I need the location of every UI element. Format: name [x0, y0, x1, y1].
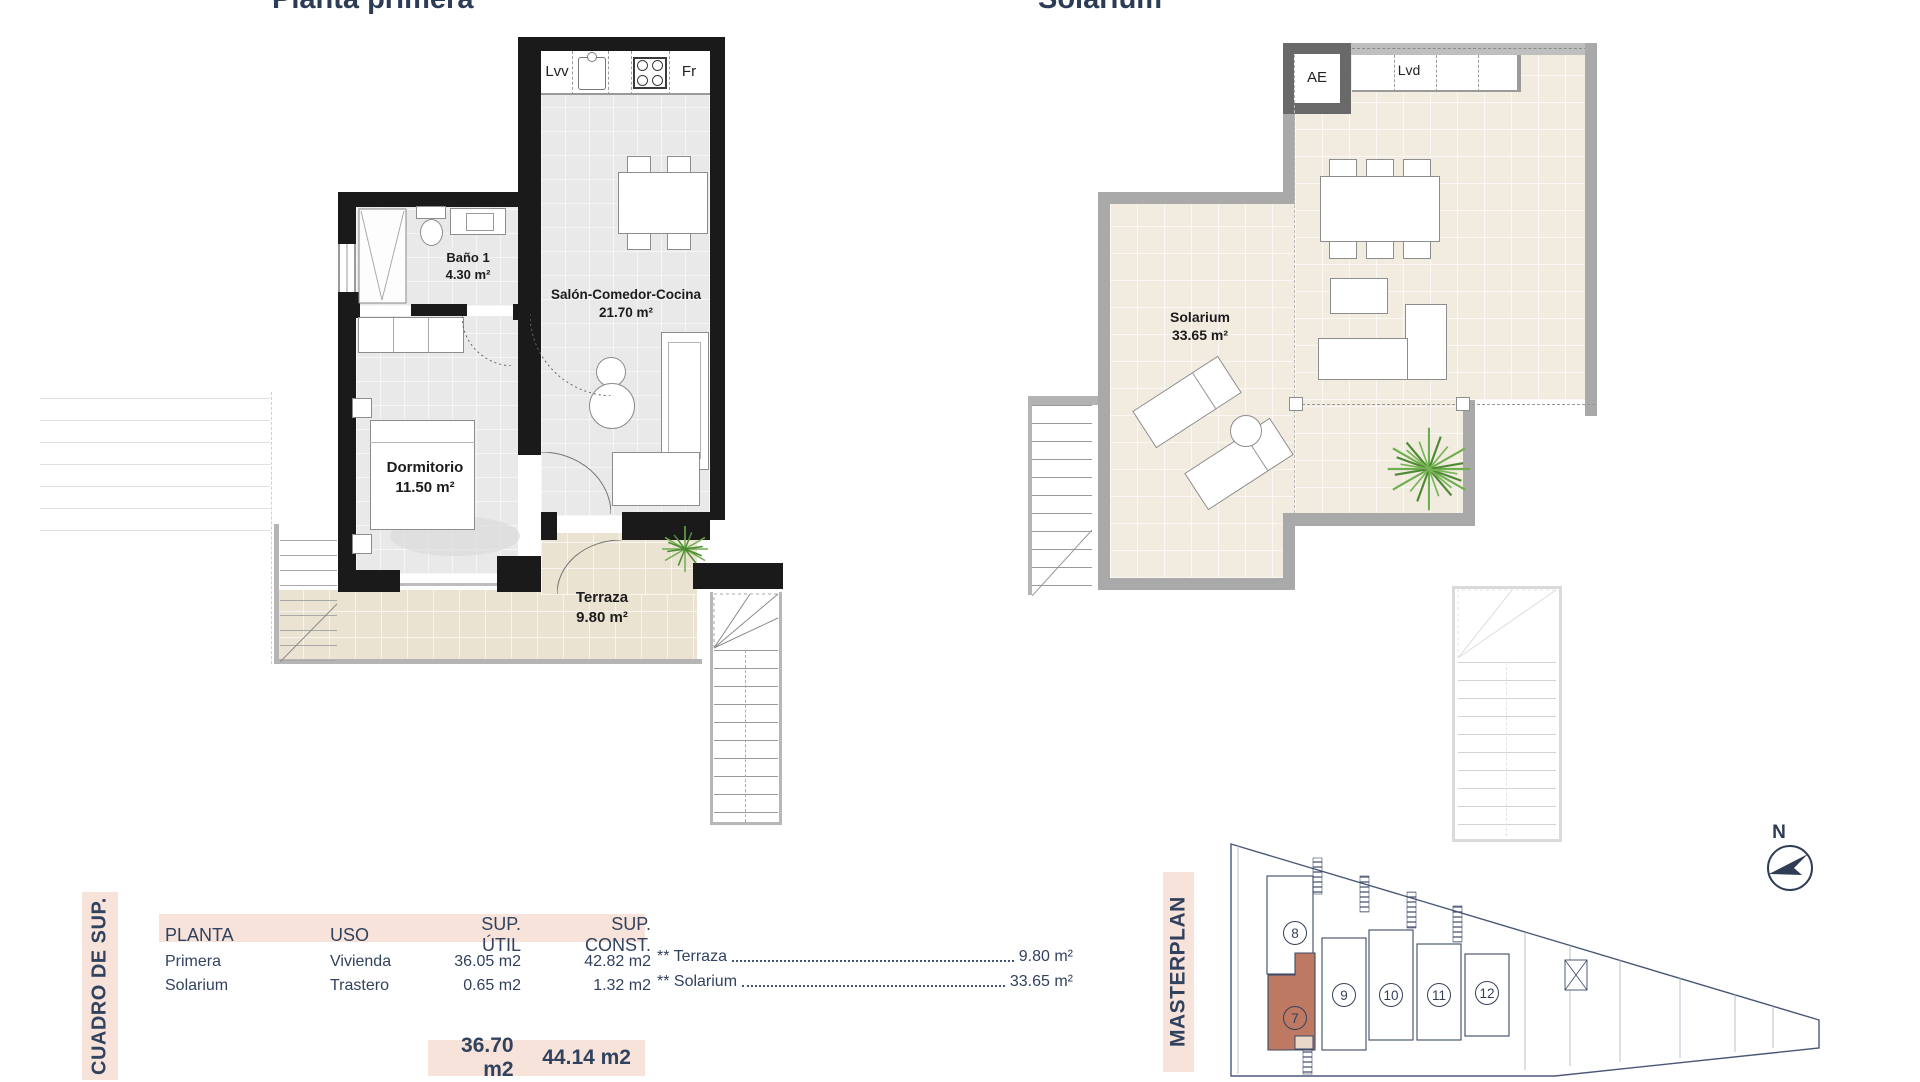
neighbor-dashed-line [271, 392, 272, 664]
dot-leader [732, 950, 1014, 962]
faint-stair-centerline [1506, 662, 1507, 836]
chair [1366, 241, 1394, 259]
faint-stair-treads [1458, 662, 1556, 836]
room-area: 21.70 m² [545, 304, 707, 322]
wall [1098, 192, 1110, 590]
dining-table [1320, 176, 1440, 242]
cell-uso: Vivienda [330, 953, 449, 971]
plan1-title: Planta primera [272, 0, 473, 16]
chair [1403, 241, 1431, 259]
terrace-label: Terraza 9.80 m² [540, 588, 664, 627]
unit-12-badge: 12 [1475, 981, 1499, 1005]
footnote-value: 9.80 m² [1019, 948, 1073, 966]
counter-divider [608, 51, 609, 95]
solarium-label: Solarium 33.65 m² [1138, 308, 1262, 344]
toilet-tank-icon [416, 206, 446, 219]
bathroom-label: Baño 1 4.30 m² [406, 250, 530, 284]
plant-icon [1386, 426, 1472, 512]
cell-util: 0.65 m2 [449, 977, 521, 995]
terrace-wall-bottom [274, 659, 702, 664]
wall [1028, 396, 1098, 405]
terrace-wall-left [274, 524, 279, 664]
cell-planta: Primera [165, 953, 330, 971]
window-line [400, 583, 497, 586]
wall [338, 570, 400, 592]
table-row: Solarium Trastero 0.65 m2 1.32 m2 [159, 974, 645, 998]
bedroom-door-arc [541, 452, 611, 514]
cell-const: 42.82 m2 [549, 953, 651, 971]
chair [667, 156, 691, 173]
living-label: Salón-Comedor-Cocina 21.70 m² [545, 286, 707, 321]
unit-9-badge: 9 [1332, 983, 1356, 1007]
unit-7-badge: 7 [1283, 1006, 1307, 1030]
stair-centerline [745, 650, 746, 822]
wall [411, 304, 467, 316]
wardrobe [358, 317, 464, 353]
window [338, 244, 356, 294]
sofa-cushion [668, 342, 701, 459]
wall [338, 192, 541, 207]
nightstand [352, 534, 372, 554]
post [1456, 397, 1470, 411]
stair-diagonal [280, 598, 337, 662]
room-name: Dormitorio [355, 458, 495, 478]
wall [338, 294, 356, 574]
north-label: N [1756, 822, 1802, 844]
summary-header-row: PLANTA USO SUP. ÚTIL SUP. CONST. [159, 914, 645, 942]
masterplan-side-label: MASTERPLAN [1163, 872, 1194, 1072]
outdoor-table [1330, 278, 1388, 314]
neighbor-terrace-lines [40, 398, 270, 548]
wall [518, 37, 725, 52]
room-name: Salón-Comedor-Cocina [545, 286, 707, 304]
open-edge-dashed [1352, 48, 1592, 49]
toilet-icon [420, 219, 443, 246]
entry-door-arc [530, 314, 614, 396]
header-planta: PLANTA [165, 925, 330, 946]
wall [338, 192, 356, 244]
wall [1098, 192, 1295, 204]
footnote-solarium: ** Solarium 33.65 m² [657, 971, 1073, 991]
room-area: 9.80 m² [540, 608, 664, 628]
bed-pillow-line [370, 442, 475, 443]
footnote-label: ** Solarium [657, 973, 737, 991]
burner-icon [637, 60, 648, 71]
footnote-value: 33.65 m² [1010, 973, 1073, 991]
elevator-label: AE [1294, 69, 1340, 86]
counter-divider [1436, 55, 1437, 92]
dot-leader [742, 975, 1005, 987]
unit-11-badge: 11 [1427, 983, 1451, 1007]
sink-tap-icon [587, 52, 597, 62]
bedroom-label: Dormitorio 11.50 m² [355, 458, 495, 497]
burner-icon [652, 75, 663, 86]
stair-treads [714, 650, 778, 822]
room-area: 4.30 m² [406, 267, 530, 284]
chair [627, 156, 651, 173]
chair [1366, 159, 1394, 177]
wall [1098, 578, 1295, 590]
counter-end [1517, 55, 1521, 92]
nightstand [352, 398, 372, 418]
wall [497, 556, 541, 592]
masterplan-site [1225, 836, 1825, 1082]
counter-divider [1478, 55, 1479, 92]
footnote-label: ** Terraza [657, 948, 727, 966]
vanity-sink [466, 213, 494, 231]
dishwasher-label: Lvv [541, 63, 573, 80]
room-area: 11.50 m² [355, 478, 495, 498]
header-uso: USO [330, 925, 449, 946]
plan2-title: Solarium [1038, 0, 1162, 16]
table-row: Primera Vivienda 36.05 m2 42.82 m2 [159, 950, 645, 974]
stair-diagonal [1032, 526, 1092, 596]
unit-8-badge: 8 [1283, 921, 1307, 945]
total-util: 36.70 m2 [428, 1034, 514, 1082]
room-name: Solarium [1138, 308, 1262, 326]
burner-icon [652, 60, 663, 71]
wall [1585, 43, 1597, 416]
unit-10-badge: 10 [1379, 983, 1403, 1007]
dining-table [618, 172, 708, 234]
bathroom-door-arc [462, 316, 514, 366]
burner-icon [637, 75, 648, 86]
stair-winder [710, 592, 782, 650]
outdoor-counter [1405, 304, 1447, 380]
cell-util: 36.05 m2 [449, 953, 521, 971]
lounger-line [1192, 373, 1216, 409]
room-name: Baño 1 [406, 250, 530, 267]
compass-needle-icon [1767, 845, 1813, 891]
post [1289, 397, 1303, 411]
wall [541, 512, 557, 540]
wall [710, 37, 725, 520]
fridge-label: Fr [668, 63, 710, 80]
chair [1403, 159, 1431, 177]
coffee-table [612, 452, 700, 506]
plant-icon [660, 524, 710, 574]
chair [627, 233, 651, 250]
counter-divider [631, 51, 632, 95]
pergola-edge-dashed [1297, 404, 1595, 405]
total-const: 44.14 m2 [514, 1046, 631, 1070]
cell-planta: Solarium [165, 977, 330, 995]
terrace-door-arc [557, 540, 621, 594]
divider-dashed [1294, 55, 1295, 513]
faint-stair-winder [1452, 586, 1562, 662]
chair [1329, 159, 1357, 177]
summary-side-label: CUADRO DE SUP. [82, 892, 118, 1080]
room-area: 33.65 m² [1138, 326, 1262, 344]
cell-const: 1.32 m2 [549, 977, 651, 995]
wall [338, 292, 360, 318]
room-name: Terraza [540, 588, 664, 608]
outdoor-counter [1318, 338, 1408, 380]
totals-row: 36.70 m2 44.14 m2 [428, 1040, 645, 1076]
wall [513, 304, 529, 320]
side-table [1230, 415, 1262, 447]
cell-uso: Trastero [330, 977, 449, 995]
laundry-label: Lvd [1386, 62, 1432, 78]
chair [1329, 241, 1357, 259]
shower-icon [358, 208, 407, 304]
footnote-terraza: ** Terraza 9.80 m² [657, 946, 1073, 966]
wall [1283, 513, 1475, 526]
chair [667, 233, 691, 250]
